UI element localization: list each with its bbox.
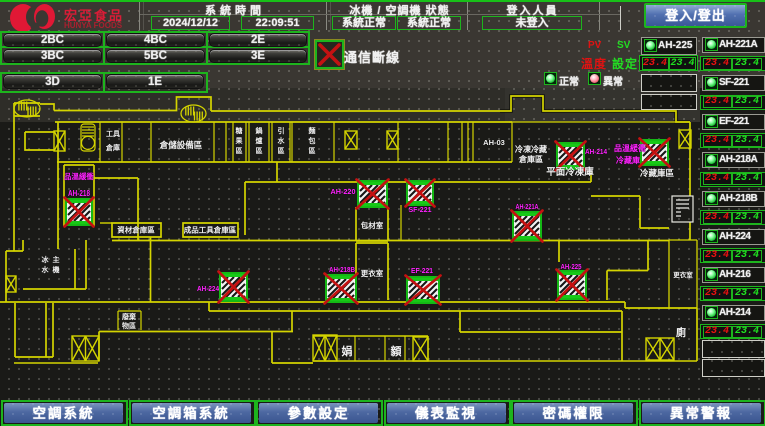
svg-text:包材室: 包材室 (360, 220, 384, 230)
svg-text:AH-218B: AH-218B (329, 265, 355, 274)
svg-text:冷凍冷藏: 冷凍冷藏 (515, 144, 547, 154)
svg-text:更衣室: 更衣室 (673, 270, 693, 279)
svg-text:引: 引 (278, 126, 285, 135)
svg-text:工具: 工具 (106, 129, 120, 138)
svg-text:倉庫區: 倉庫區 (518, 154, 543, 164)
svg-text:機: 機 (53, 265, 60, 274)
svg-text:區: 區 (256, 146, 263, 155)
svg-text:SF-221: SF-221 (409, 205, 432, 214)
svg-text:顡: 顡 (390, 344, 402, 358)
svg-text:成品工具倉庫區: 成品工具倉庫區 (184, 225, 237, 235)
svg-text:平面冷凍庫: 平面冷凍庫 (546, 166, 594, 178)
svg-text:鍋: 鍋 (256, 126, 263, 135)
svg-text:物區: 物區 (122, 321, 136, 330)
svg-text:糖: 糖 (236, 126, 243, 135)
svg-text:冷藏庫區: 冷藏庫區 (640, 168, 675, 178)
svg-text:AH-03: AH-03 (483, 138, 505, 147)
svg-text:品溫緩衝: 品溫緩衝 (614, 143, 646, 153)
svg-text:品溫緩衝: 品溫緩衝 (64, 171, 94, 181)
svg-text:包: 包 (309, 136, 316, 145)
svg-text:水: 水 (278, 136, 286, 145)
svg-text:區: 區 (236, 146, 243, 155)
svg-text:水: 水 (42, 265, 50, 274)
svg-text:娟: 娟 (342, 344, 353, 358)
svg-text:AH-221A: AH-221A (516, 202, 539, 211)
svg-text:區: 區 (309, 146, 316, 155)
svg-text:廁: 廁 (676, 326, 686, 339)
svg-text:AH-214: AH-214 (585, 147, 608, 156)
svg-text:資材倉庫區: 資材倉庫區 (117, 225, 155, 235)
svg-text:主: 主 (53, 255, 60, 264)
svg-text:冷藏庫: 冷藏庫 (616, 155, 640, 165)
svg-text:AH-225: AH-225 (561, 262, 582, 271)
svg-text:倉庫: 倉庫 (105, 143, 120, 152)
svg-text:冰: 冰 (42, 255, 50, 264)
svg-text:倉儲設備區: 倉儲設備區 (159, 140, 203, 150)
svg-text:廢棄: 廢棄 (121, 312, 137, 321)
svg-text:爐: 爐 (256, 136, 263, 145)
svg-text:AH-220: AH-220 (331, 187, 356, 196)
svg-text:AH-218: AH-218 (68, 189, 90, 198)
svg-text:EF-221: EF-221 (411, 266, 433, 275)
svg-text:更衣室: 更衣室 (361, 268, 384, 278)
svg-text:麵: 麵 (308, 126, 316, 135)
svg-text:區: 區 (278, 146, 285, 155)
svg-text:果: 果 (236, 136, 243, 145)
svg-text:AH-224: AH-224 (197, 284, 220, 293)
